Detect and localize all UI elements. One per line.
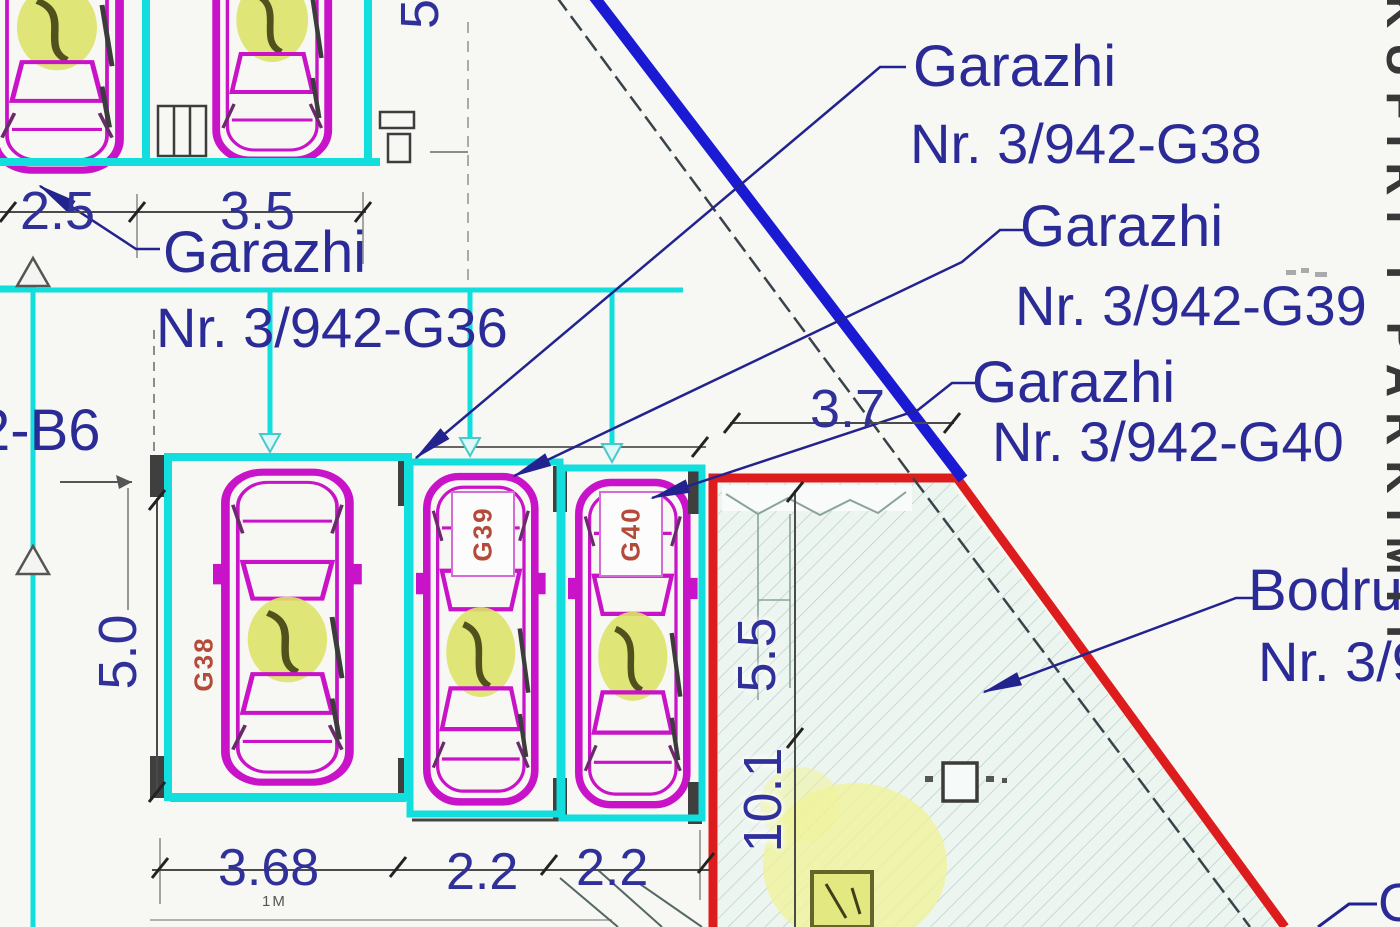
dim-bottom-2-2-b: 2.2 <box>576 842 648 894</box>
label-garazhi-g39-line2: Nr. 3/942-G39 <box>1015 278 1367 334</box>
dim-red-side-5-5: 5.5 <box>730 617 784 692</box>
site-plan-drawing: Garazhi Nr. 3/942-G36 Garazhi Nr. 3/942-… <box>0 0 1400 927</box>
label-parcel-left-fragment: 2-B6 <box>0 402 101 460</box>
label-garazhi-g36-line2: Nr. 3/942-G36 <box>156 300 508 356</box>
dim-top-3-5: 3.5 <box>220 184 295 238</box>
car-in-garage-g38 <box>213 472 362 782</box>
dim-left-5-0: 5.0 <box>91 614 145 689</box>
edge-vertical-text: KUFIRI I PARKIMIT <box>1376 0 1400 661</box>
dim-top-2-5: 2.5 <box>20 184 95 238</box>
label-garazhi-g40-line2: Nr. 3/942-G40 <box>992 414 1344 470</box>
label-garazhi-g40-line1: Garazhi <box>972 354 1175 412</box>
label-corner-fragment: G <box>1378 872 1400 927</box>
car-top-left-partial <box>0 0 132 170</box>
leader-arrow-g39 <box>514 230 1026 476</box>
dim-small-note: 1M <box>262 893 287 910</box>
dim-red-top-3-7: 3.7 <box>810 382 885 436</box>
small-gray-arrow <box>116 475 132 489</box>
dim-bottom-2-2-a: 2.2 <box>446 846 518 898</box>
dim-red-side-10-1: 10.1 <box>736 747 790 852</box>
blue-boundary-line <box>592 0 963 479</box>
dim-bottom-3-68: 3.68 <box>218 842 319 894</box>
label-garazhi-g39-line1: Garazhi <box>1020 198 1223 256</box>
label-garazhi-g38-line2: Nr. 3/942-G38 <box>910 116 1262 172</box>
car-tag-g40: G40 <box>616 506 647 561</box>
car-tag-g38: G38 <box>189 636 220 691</box>
car-top-second <box>205 0 339 160</box>
leader-corner-fragment <box>1318 904 1377 927</box>
label-garazhi-g38-line1: Garazhi <box>913 38 1116 96</box>
wall-details-top <box>158 106 414 162</box>
car-tag-g39: G39 <box>468 506 499 561</box>
dim-top-right-partial-5: 5 <box>393 0 447 29</box>
